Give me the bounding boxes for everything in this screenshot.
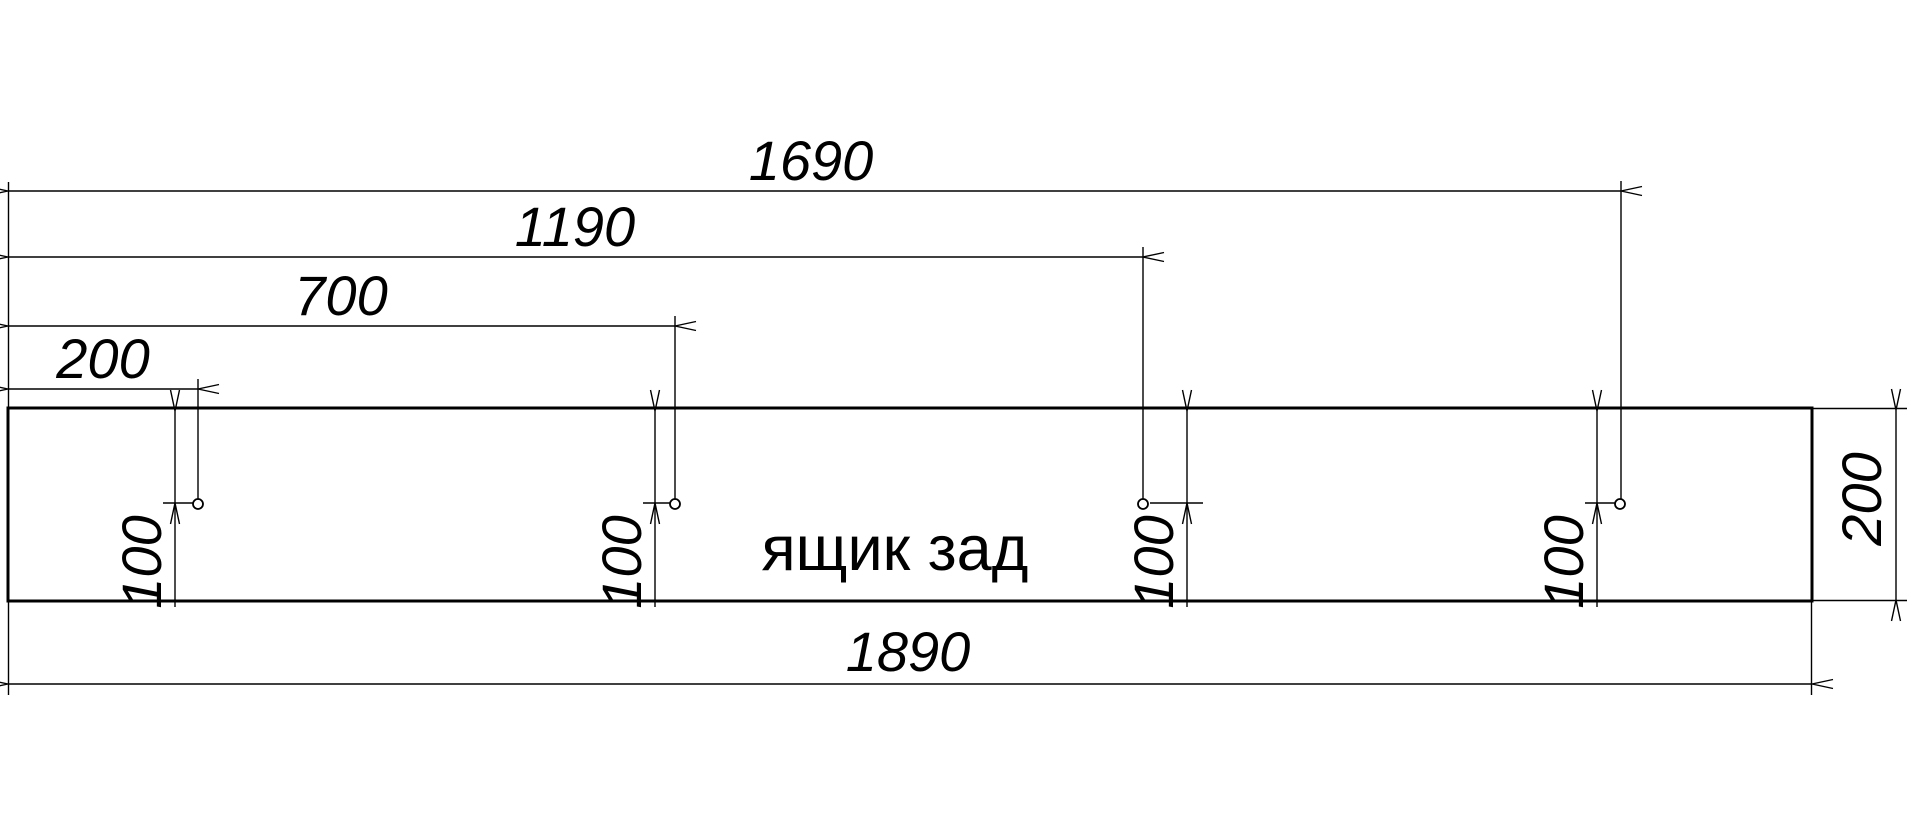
dim-text-700: 700 <box>294 264 387 327</box>
part-label: ящик зад <box>762 514 1029 584</box>
hole-2 <box>670 499 680 509</box>
dim-text-100-4: 100 <box>1532 515 1595 608</box>
dim-text-200-right: 200 <box>1830 452 1893 546</box>
dim-text-100-2: 100 <box>590 515 653 608</box>
dim-right-200: 200 <box>1812 409 1907 601</box>
dim-text-1690: 1690 <box>749 129 874 192</box>
hole-3 <box>1138 499 1148 509</box>
hole-1 <box>193 499 203 509</box>
drawing-canvas: ящик зад 1690 1190 700 200 1890 200 <box>0 0 1915 835</box>
hole-4 <box>1615 499 1625 509</box>
dim-text-200-top: 200 <box>55 327 149 390</box>
dim-text-100-1: 100 <box>110 515 173 608</box>
dim-bottom-1890: 1890 <box>8 601 1812 695</box>
dim-text-1890: 1890 <box>846 620 971 683</box>
panel-drawing: ящик зад 1690 1190 700 200 1890 200 <box>0 0 1915 835</box>
dim-text-1190: 1190 <box>515 195 635 258</box>
dim-text-100-3: 100 <box>1122 515 1185 608</box>
